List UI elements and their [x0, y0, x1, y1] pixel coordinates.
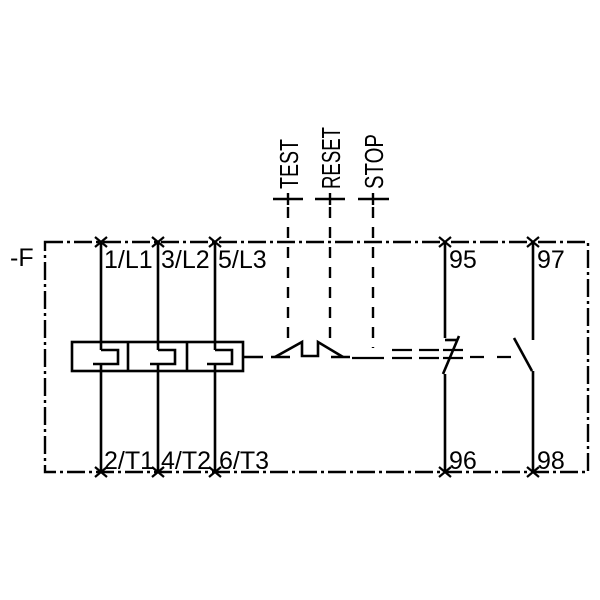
test-button-handle [273, 193, 303, 205]
overload-relay-diagram: -F 1/L1 3/L2 5/L3 95 97 2/T1 4/T2 6/T3 9… [0, 0, 600, 600]
trip-mechanism [271, 342, 350, 357]
trip-latch-profile [275, 342, 343, 357]
main-phase-conductors [93, 242, 232, 472]
schematic-canvas: -F 1/L1 3/L2 5/L3 95 97 2/T1 4/T2 6/T3 9… [0, 0, 600, 600]
reset-button-handle [315, 193, 345, 205]
terminal-label-5l3: 5/L3 [218, 246, 267, 274]
device-designation-label: -F [10, 244, 34, 272]
terminal-label-98: 98 [537, 447, 565, 475]
terminal-label-4t2: 4/T2 [161, 447, 211, 475]
terminal-label-96: 96 [449, 447, 477, 475]
terminal-label-1l1: 1/L1 [104, 246, 153, 274]
terminal-label-6t3: 6/T3 [219, 447, 269, 475]
terminal-label-3l2: 3/L2 [161, 246, 210, 274]
phase-conductor-l1 [93, 242, 118, 472]
phase-conductor-l3 [207, 242, 232, 472]
trip-slide-bar-2 [419, 350, 439, 358]
test-button-label: TEST [274, 139, 304, 189]
stop-button-handle [358, 193, 389, 205]
reset-button-label: RESET [316, 127, 346, 189]
terminal-label-95: 95 [449, 246, 477, 274]
actuator-handles [273, 193, 389, 205]
no-contact-97-98 [514, 242, 533, 472]
no-contact-mover [514, 338, 532, 371]
phase-conductor-l2 [150, 242, 175, 472]
stop-button-label: STOP [359, 134, 389, 189]
nc-contact-mover [443, 336, 459, 374]
trip-slide-bar-1 [392, 350, 412, 358]
terminal-label-97: 97 [537, 246, 565, 274]
terminal-label-2t1: 2/T1 [104, 447, 154, 475]
actuator-linkage-lines [288, 207, 373, 348]
mechanical-linkage [352, 350, 511, 358]
